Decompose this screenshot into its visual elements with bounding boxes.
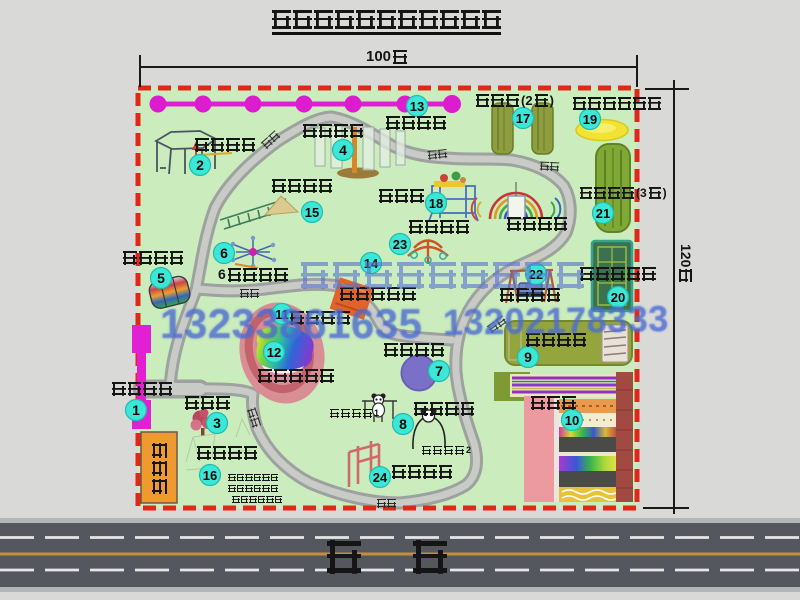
svg-text:1: 1 bbox=[132, 402, 140, 418]
svg-text:21: 21 bbox=[596, 206, 610, 221]
svg-text:13: 13 bbox=[410, 99, 424, 114]
svg-text:16: 16 bbox=[203, 468, 217, 483]
svg-text:10: 10 bbox=[565, 413, 579, 428]
svg-text:3: 3 bbox=[213, 415, 221, 431]
svg-text:5: 5 bbox=[157, 270, 165, 286]
svg-text:12: 12 bbox=[267, 345, 281, 360]
svg-text:23: 23 bbox=[393, 237, 407, 252]
svg-text:2: 2 bbox=[196, 157, 204, 173]
svg-text:4: 4 bbox=[339, 142, 347, 158]
svg-text:15: 15 bbox=[305, 205, 319, 220]
svg-text:24: 24 bbox=[373, 470, 388, 485]
svg-text:18: 18 bbox=[429, 196, 443, 211]
svg-text:6: 6 bbox=[220, 245, 228, 261]
svg-text:17: 17 bbox=[516, 111, 530, 126]
svg-text:8: 8 bbox=[399, 416, 407, 432]
svg-text:7: 7 bbox=[435, 363, 443, 379]
